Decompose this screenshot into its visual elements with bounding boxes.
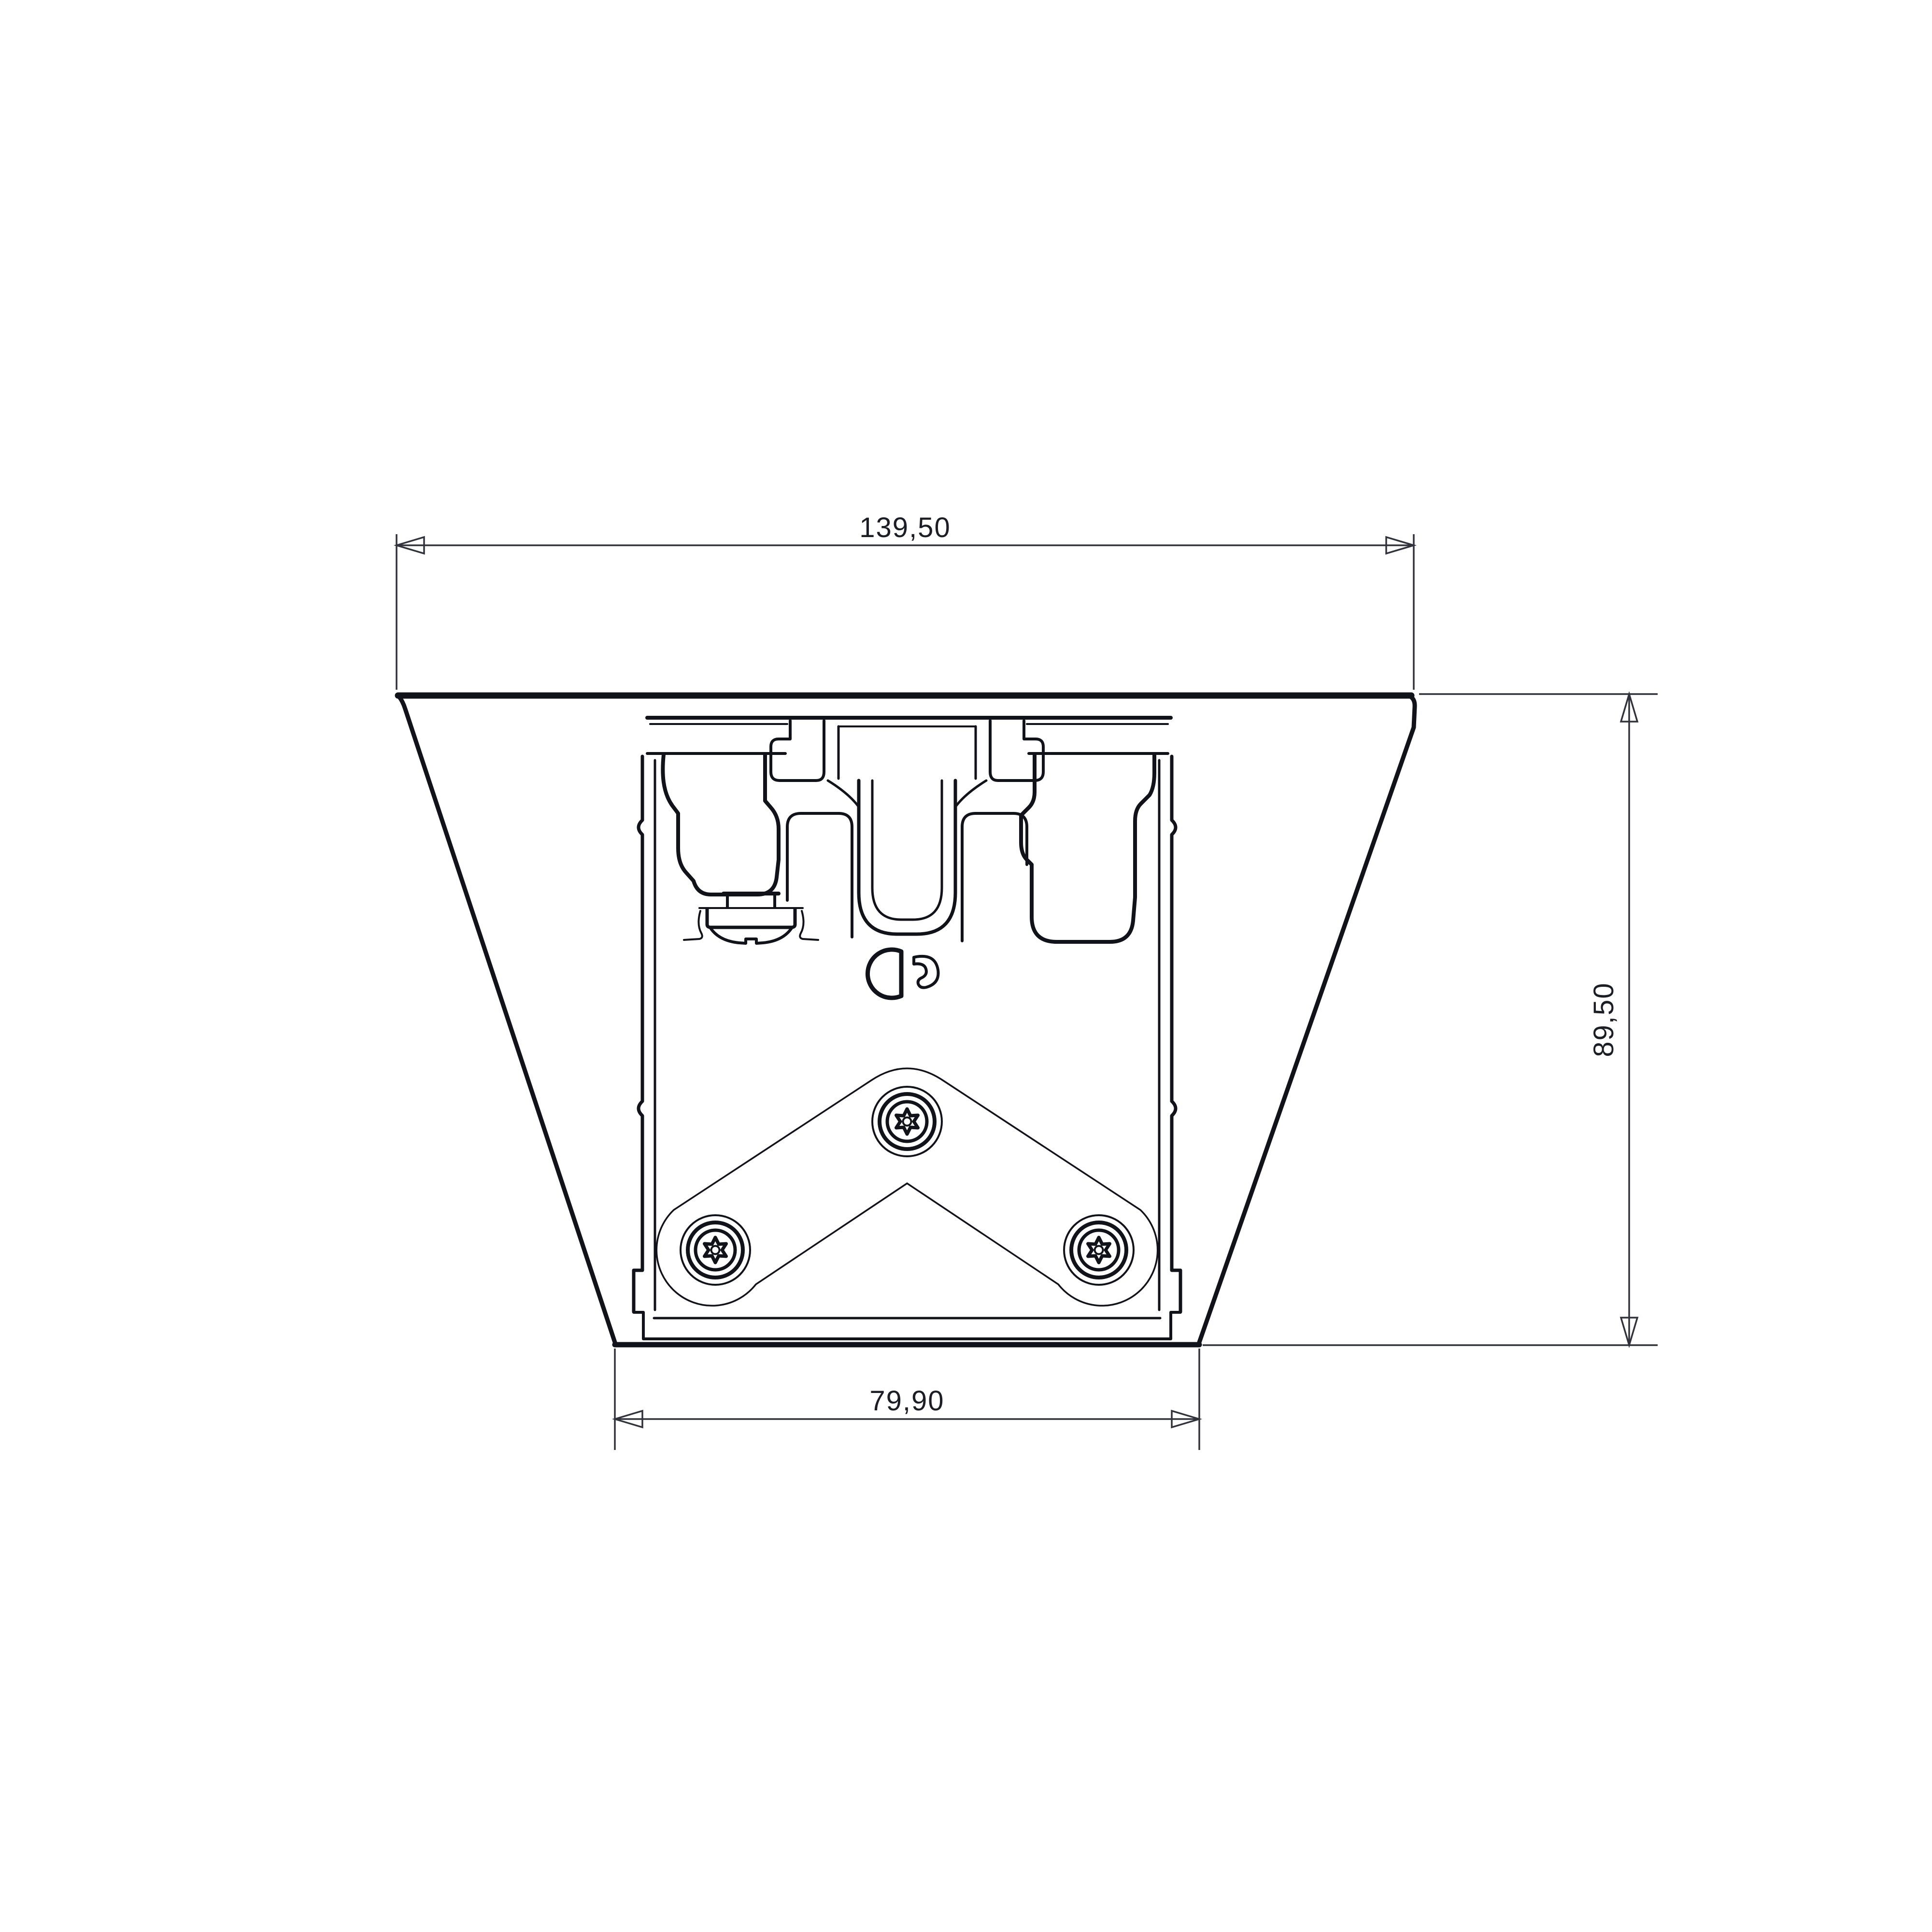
housing-outline <box>398 696 1415 1345</box>
dimension-top-width: 139,50 <box>397 512 1414 690</box>
dimension-height: 89,50 <box>1203 694 1658 1345</box>
keyhole-crescent <box>914 956 938 988</box>
keyhole-d-shape <box>867 950 901 998</box>
dimension-label-top-width: 139,50 <box>859 512 951 543</box>
hook-claw-right <box>1021 754 1154 942</box>
rail-top-inner-line <box>650 724 1168 726</box>
hook-claw-left <box>663 754 779 895</box>
rail-tslot-left <box>771 721 824 781</box>
torx-screw-top <box>872 1087 942 1156</box>
housing-right-slant <box>1199 696 1415 1342</box>
shoulder-right <box>962 813 1027 941</box>
plate-right-outer-edge <box>1172 756 1180 1312</box>
washer-screw-dome <box>710 927 792 943</box>
dimension-bottom-width: 79,90 <box>615 1349 1199 1450</box>
washer-screw-body <box>707 909 795 927</box>
dimension-label-height: 89,50 <box>1588 982 1619 1057</box>
extension-lines-top <box>397 534 1414 690</box>
torx-screw-left <box>681 1215 750 1285</box>
shoulder-left <box>787 813 852 937</box>
keyhole-slot <box>867 950 938 998</box>
center-u-channel-inner <box>872 781 942 920</box>
rail-hat-channel <box>838 726 976 779</box>
washer-screw-side-view <box>684 894 818 943</box>
washer-screw-skirt <box>684 911 818 940</box>
drawing-sheet: 139,50 79,90 89,50 <box>0 0 1932 1932</box>
housing-left-slant <box>399 696 615 1342</box>
mounting-plate <box>634 756 1180 1339</box>
torx-screw-right <box>1064 1215 1134 1285</box>
plate-left-outer-edge <box>634 756 642 1312</box>
technical-drawing: 139,50 79,90 89,50 <box>0 0 1932 1932</box>
dimension-label-bottom-width: 79,90 <box>869 1385 944 1417</box>
rail-hat-feet <box>828 781 986 806</box>
plate-bottom-flange <box>634 1312 1180 1339</box>
